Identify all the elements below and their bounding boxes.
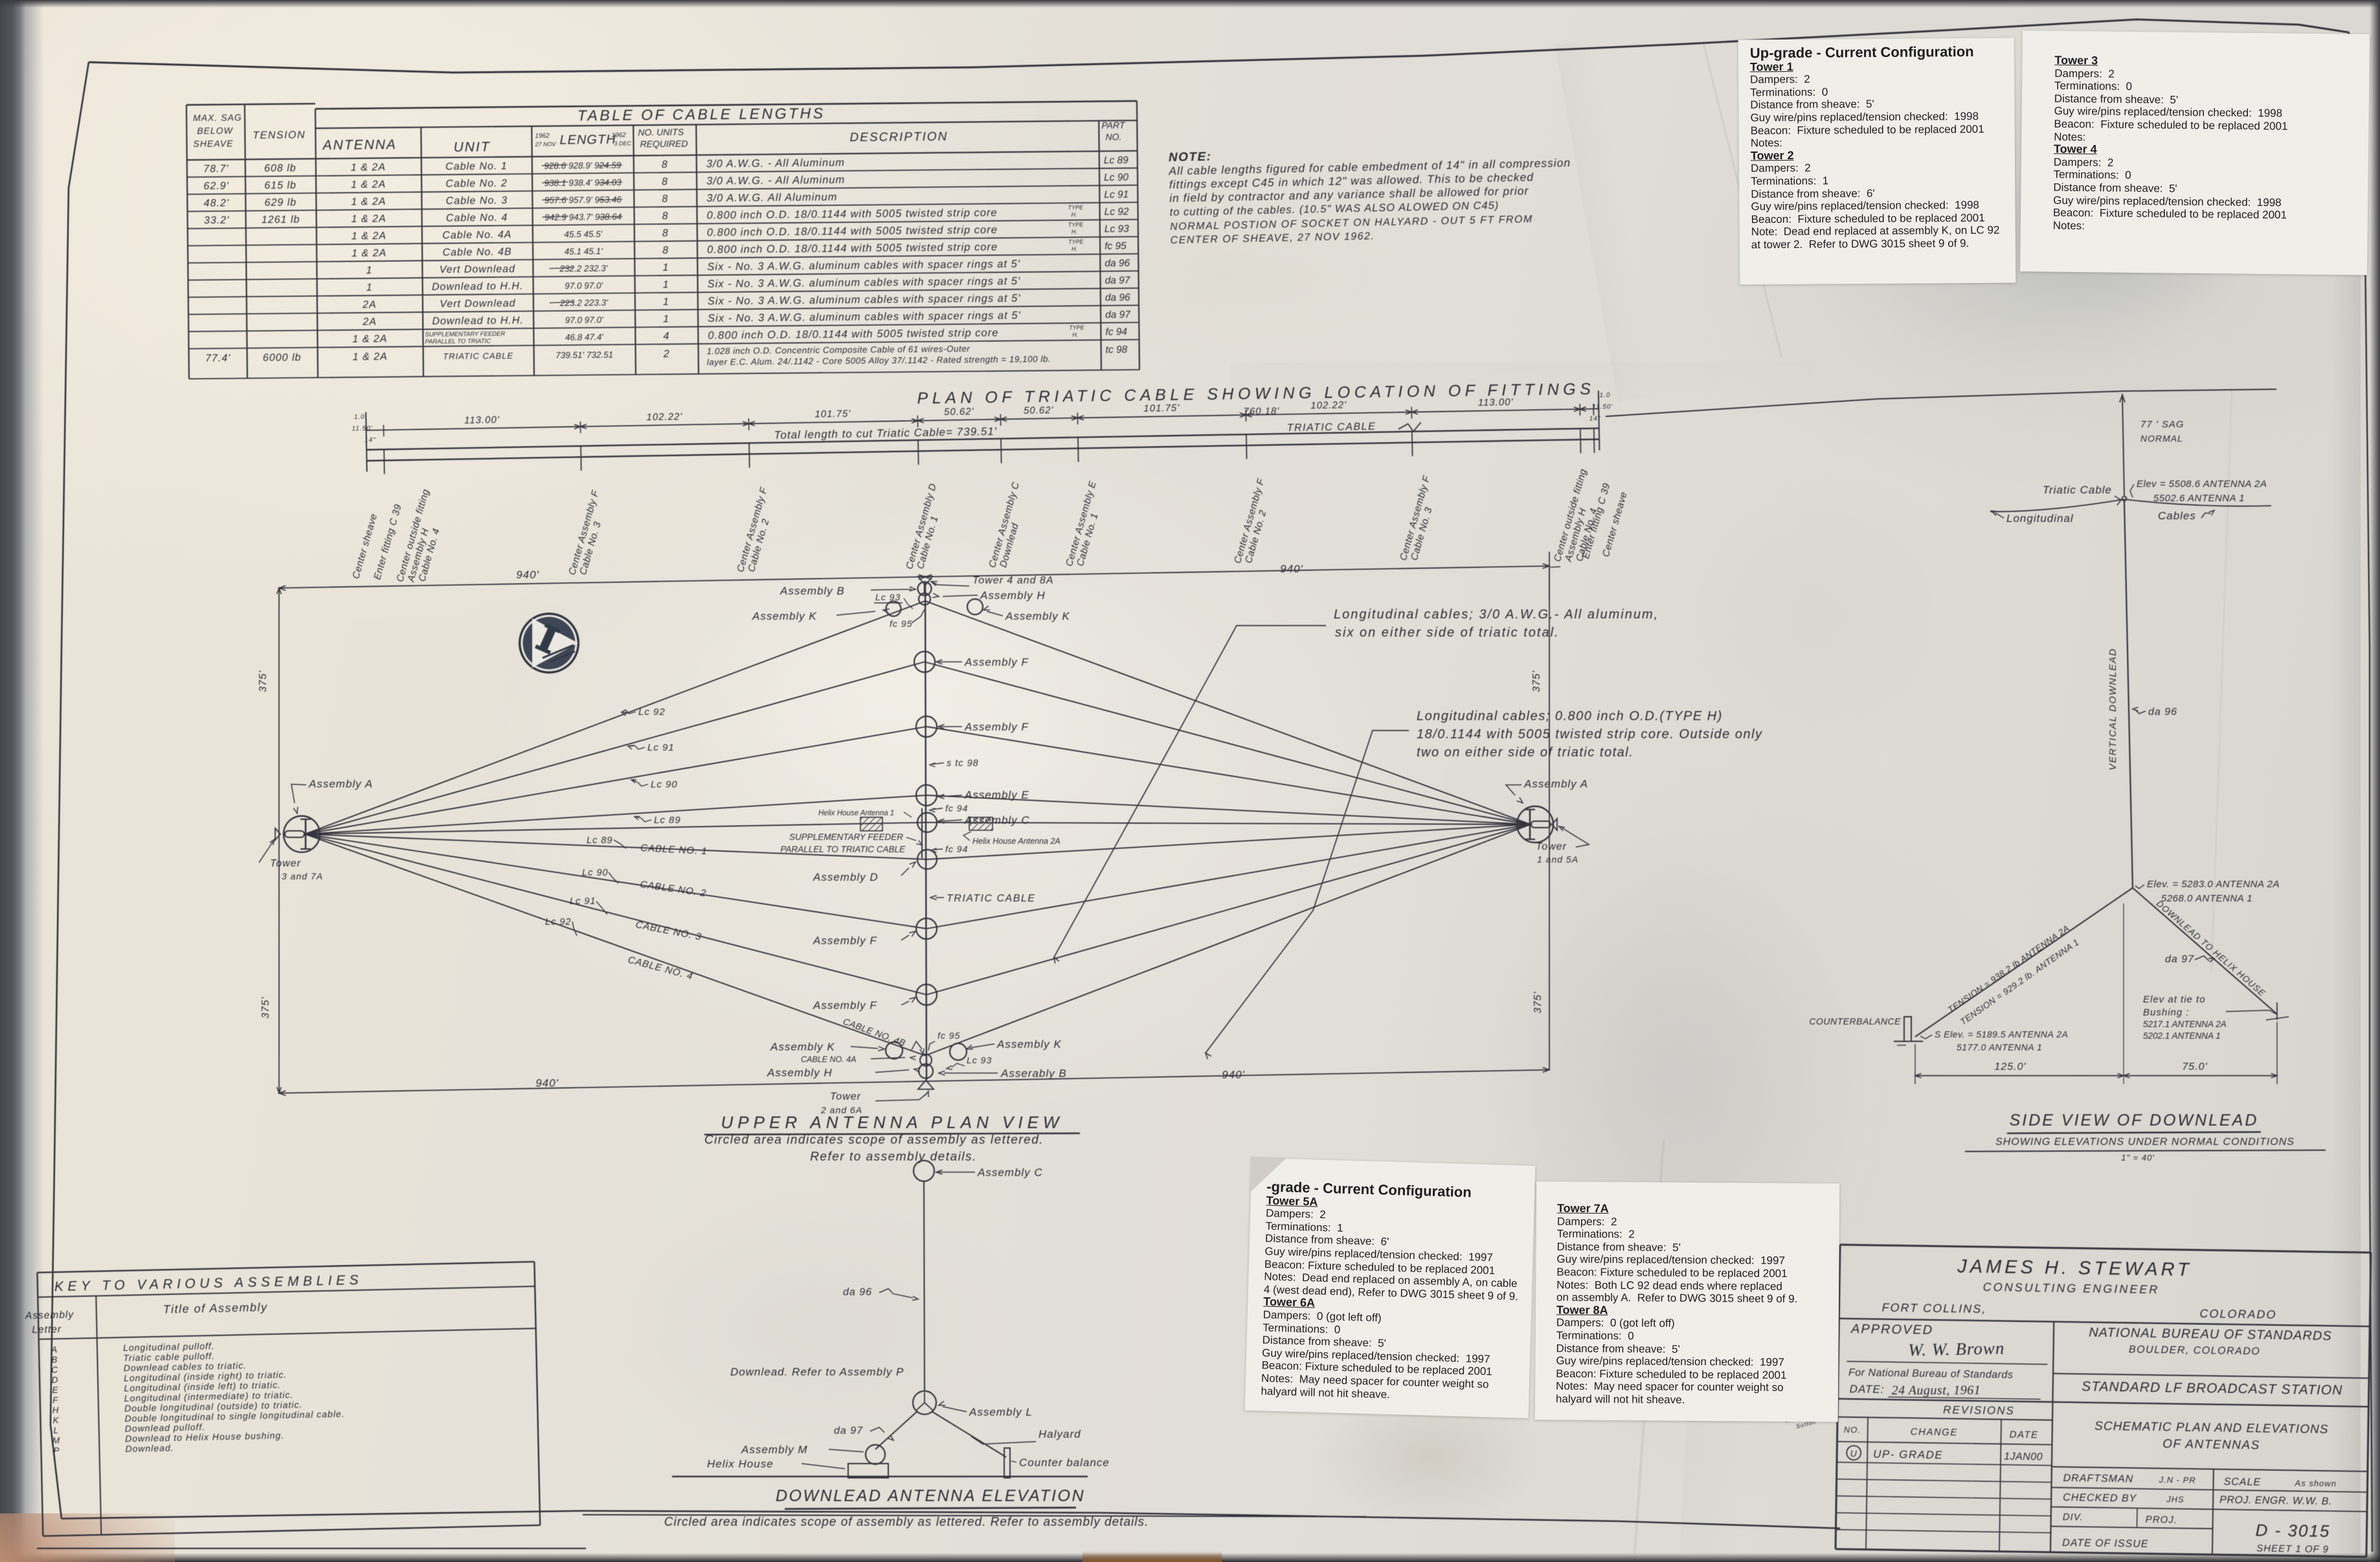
svg-text:NO.: NO. bbox=[1105, 131, 1121, 142]
svg-text:6000 lb: 6000 lb bbox=[263, 352, 302, 364]
svg-text:Elev at tie to: Elev at tie to bbox=[2143, 994, 2206, 1005]
svg-text:3/0 A.W.G. All Aluminum: 3/0 A.W.G. All Aluminum bbox=[706, 191, 837, 204]
svg-text:1962: 1962 bbox=[611, 131, 626, 139]
svg-text:Tower: Tower bbox=[270, 858, 301, 869]
svg-text:113.00': 113.00' bbox=[1478, 397, 1514, 409]
svg-text:ANTENNA: ANTENNA bbox=[321, 137, 397, 153]
svg-text:fc 95: fc 95 bbox=[1105, 241, 1127, 252]
svg-text:DRAFTSMAN: DRAFTSMAN bbox=[2063, 1473, 2134, 1485]
svg-text:da 96: da 96 bbox=[1105, 292, 1130, 303]
svg-text:Six - No. 3 A.W.G. aluminum: Six - No. 3 A.W.G. aluminum cables with … bbox=[708, 310, 1021, 324]
svg-text:940': 940' bbox=[535, 1077, 559, 1089]
svg-text:TENSION = 929.2 lb. ANTENNA: TENSION = 929.2 lb. ANTENNA 1 bbox=[1959, 937, 2081, 1027]
svg-text:DATE: DATE bbox=[2010, 1429, 2039, 1441]
svg-text:Letter: Letter bbox=[32, 1324, 62, 1335]
svg-text:TYPE: TYPE bbox=[1068, 238, 1084, 245]
svg-text:Assembly K: Assembly K bbox=[1005, 610, 1070, 622]
svg-text:TYPE: TYPE bbox=[1069, 324, 1085, 331]
svg-text:Vert Downlead: Vert Downlead bbox=[440, 298, 516, 310]
svg-text:4: 4 bbox=[663, 331, 669, 342]
svg-text:U: U bbox=[1850, 1448, 1858, 1458]
svg-text:3/0 A.W.G. - All Aluminu: 3/0 A.W.G. - All Aluminum bbox=[706, 174, 845, 187]
svg-text:Lc 91: Lc 91 bbox=[1104, 189, 1128, 200]
svg-text:CABLE NO. 1: CABLE NO. 1 bbox=[640, 843, 708, 857]
svg-text:Bushing :: Bushing : bbox=[2143, 1007, 2190, 1018]
svg-text:TYPE: TYPE bbox=[1068, 221, 1084, 228]
svg-text:5202.1 ANTENNA 1: 5202.1 ANTENNA 1 bbox=[2143, 1031, 2221, 1041]
svg-text:SCHEMATIC PLAN AND ELEVATIO: SCHEMATIC PLAN AND ELEVATIONS bbox=[2094, 1420, 2329, 1436]
svg-text:1 & 2A: 1 & 2A bbox=[352, 334, 387, 345]
svg-text:H.: H. bbox=[1072, 229, 1077, 235]
svg-text:8: 8 bbox=[662, 228, 669, 239]
svg-text:CONSULTING ENGINEER: CONSULTING ENGINEER bbox=[1983, 1280, 2160, 1296]
svg-text:UNIT: UNIT bbox=[453, 140, 490, 155]
svg-text:E: E bbox=[52, 1385, 58, 1395]
svg-text:102.22': 102.22' bbox=[1310, 400, 1347, 411]
svg-text:K: K bbox=[52, 1416, 59, 1425]
svg-text:D: D bbox=[52, 1375, 59, 1385]
svg-text:77.4': 77.4' bbox=[205, 353, 230, 364]
svg-text:78.7': 78.7' bbox=[203, 163, 229, 174]
svg-text:46.8 47.4': 46.8 47.4' bbox=[565, 332, 603, 343]
svg-text:Cable No. 4B: Cable No. 4B bbox=[442, 247, 511, 258]
svg-text:Lc 90: Lc 90 bbox=[1104, 172, 1128, 183]
svg-text:48.2': 48.2' bbox=[204, 198, 229, 209]
svg-text:5217.1 ANTENNA 2A: 5217.1 ANTENNA 2A bbox=[2143, 1019, 2227, 1029]
svg-text:DESCRIPTION: DESCRIPTION bbox=[849, 130, 948, 144]
svg-text:NO. UNITS: NO. UNITS bbox=[638, 127, 684, 138]
svg-text:COLORADO: COLORADO bbox=[2199, 1307, 2276, 1321]
svg-text:SHEET 1 OF 9: SHEET 1 OF 9 bbox=[2256, 1543, 2329, 1556]
svg-text:Tower 4 and 8A: Tower 4 and 8A bbox=[972, 575, 1053, 586]
svg-text:da 97: da 97 bbox=[2165, 954, 2194, 965]
svg-text:45.5 45.5': 45.5 45.5' bbox=[564, 229, 602, 240]
svg-text:VERTICAL DOWNLEAD: VERTICAL DOWNLEAD bbox=[2107, 648, 2118, 770]
svg-text:1: 1 bbox=[366, 265, 372, 276]
svg-text:Assembly C: Assembly C bbox=[977, 1166, 1043, 1179]
svg-text:DOWNLEAD TO HELIX HOUSE: DOWNLEAD TO HELIX HOUSE bbox=[2155, 898, 2267, 998]
svg-text:H.: H. bbox=[1072, 211, 1077, 218]
svg-text:TABLE OF CABLE LENGTHS: TABLE OF CABLE LENGTHS bbox=[578, 105, 825, 124]
svg-text:Cables: Cables bbox=[2158, 510, 2196, 522]
svg-text:113.00': 113.00' bbox=[464, 414, 500, 426]
svg-text:APPROVED: APPROVED bbox=[1850, 1322, 1933, 1337]
svg-text:33.2': 33.2' bbox=[204, 215, 229, 226]
svg-text:Assembly: Assembly bbox=[25, 1309, 74, 1322]
svg-text:Elev. = 5283.0 ANTENNA 2A: Elev. = 5283.0 ANTENNA 2A bbox=[2147, 879, 2280, 890]
svg-text:TYPE: TYPE bbox=[1068, 204, 1084, 210]
svg-text:NO.: NO. bbox=[1844, 1425, 1861, 1434]
svg-text:da 97: da 97 bbox=[834, 1425, 863, 1436]
svg-text:Circled area indicates sco: Circled area indicates scope of assembly… bbox=[704, 1133, 1044, 1147]
svg-text:375': 375' bbox=[258, 670, 269, 692]
svg-text:Lc 93: Lc 93 bbox=[967, 1055, 992, 1065]
svg-text:Elev = 5508.6 ANTENNA 2A: Elev = 5508.6 ANTENNA 2A bbox=[2137, 479, 2267, 490]
svg-text:fc 95: fc 95 bbox=[937, 1030, 960, 1041]
svg-text:1: 1 bbox=[663, 279, 669, 290]
svg-text:CENTER OF SHEAVE, 27 NOV 1962.: CENTER OF SHEAVE, 27 NOV 1962. bbox=[1170, 231, 1375, 246]
svg-text:s tc 98: s tc 98 bbox=[947, 758, 979, 769]
svg-text:da 96: da 96 bbox=[2148, 707, 2177, 718]
svg-text:629 lb: 629 lb bbox=[264, 197, 297, 208]
svg-text:101.75': 101.75' bbox=[1143, 403, 1180, 414]
svg-text:L: L bbox=[53, 1425, 59, 1435]
svg-text:1 & 2A: 1 & 2A bbox=[352, 231, 387, 242]
svg-text:62.9': 62.9' bbox=[203, 181, 229, 192]
svg-text:Downlead.: Downlead. bbox=[125, 1443, 174, 1454]
svg-text:125.0': 125.0' bbox=[1994, 1061, 2026, 1072]
svg-text:8: 8 bbox=[662, 194, 668, 205]
svg-text:Six - No. 3 A.W.G. aluminum: Six - No. 3 A.W.G. aluminum cables with … bbox=[708, 275, 1021, 290]
svg-text:F: F bbox=[52, 1395, 59, 1405]
svg-text:As shown: As shown bbox=[2295, 1478, 2337, 1488]
svg-text:fc 94: fc 94 bbox=[1105, 326, 1127, 337]
svg-text:1: 1 bbox=[366, 282, 373, 293]
svg-text:UP- GRADE: UP- GRADE bbox=[1873, 1448, 1943, 1462]
svg-text:FORT COLLINS,: FORT COLLINS, bbox=[1881, 1301, 1986, 1315]
svg-text:8: 8 bbox=[662, 159, 668, 170]
svg-text:fc 94: fc 94 bbox=[945, 844, 968, 854]
svg-text:PROJ. ENGR. W.W. B.: PROJ. ENGR. W.W. B. bbox=[2219, 1495, 2332, 1508]
svg-text:Assembly H: Assembly H bbox=[767, 1067, 833, 1079]
svg-text:Triatic Cable: Triatic Cable bbox=[2043, 484, 2112, 496]
svg-text:1 & 2A: 1 & 2A bbox=[351, 196, 386, 208]
svg-text:DATE:: DATE: bbox=[1850, 1383, 1885, 1396]
svg-text:Downlead to H.H.: Downlead to H.H. bbox=[432, 281, 524, 293]
svg-text:0.800 inch O.D. 18/0.1144: 0.800 inch O.D. 18/0.1144 with 5005 twis… bbox=[707, 224, 998, 238]
svg-text:1: 1 bbox=[663, 313, 669, 324]
svg-text:CABLE NO. 4A: CABLE NO. 4A bbox=[801, 1055, 856, 1064]
svg-text:CHECKED BY: CHECKED BY bbox=[2063, 1492, 2137, 1504]
svg-text:0.800 inch O.D. 18/0.1144: 0.800 inch O.D. 18/0.1144 with 5005 twis… bbox=[706, 207, 997, 221]
svg-text:0.800 inch O.D. 18/0.1144: 0.800 inch O.D. 18/0.1144 with 5005 twis… bbox=[708, 327, 998, 341]
svg-text:1: 1 bbox=[663, 297, 669, 308]
svg-text:18/0.1144 with 5005 twisted: 18/0.1144 with 5005 twisted strip core. … bbox=[1417, 727, 1763, 741]
svg-text:S Elev. = 5189.5 ANTENNA 2A: S Elev. = 5189.5 ANTENNA 2A bbox=[1935, 1029, 2068, 1039]
svg-text:940': 940' bbox=[1280, 563, 1303, 575]
svg-text:97.0 97.0': 97.0 97.0' bbox=[565, 280, 603, 291]
svg-text:D - 3015: D - 3015 bbox=[2255, 1521, 2330, 1541]
svg-text:CABLE NO. 4: CABLE NO. 4 bbox=[627, 954, 694, 982]
svg-text:739.51' 732.51: 739.51' 732.51 bbox=[556, 350, 613, 360]
svg-text:375': 375' bbox=[260, 997, 271, 1019]
svg-text:Assembly K: Assembly K bbox=[752, 610, 817, 622]
svg-text:232.2 232.3': 232.2 232.3' bbox=[559, 264, 607, 274]
svg-text:layer E.C. Alum. 24/.1142 - Co: layer E.C. Alum. 24/.1142 - Core 5005 Al… bbox=[707, 354, 1051, 367]
svg-text:A: A bbox=[51, 1344, 58, 1354]
svg-text:Lc 93: Lc 93 bbox=[1105, 223, 1129, 234]
svg-text:UPPER ANTENNA PLAN VIEW: UPPER ANTENNA PLAN VIEW bbox=[721, 1113, 1064, 1132]
svg-text:JHS: JHS bbox=[2166, 1495, 2184, 1504]
svg-text:SUPPLEMENTARY FEEDER: SUPPLEMENTARY FEEDER bbox=[425, 330, 505, 338]
svg-text:Assembly F: Assembly F bbox=[964, 721, 1029, 733]
svg-text:For National Bureau of Stan: For National Bureau of Standards bbox=[1848, 1367, 2014, 1381]
svg-text:TENSION: TENSION bbox=[253, 130, 306, 141]
svg-text:11.50': 11.50' bbox=[1592, 403, 1613, 411]
svg-text:STANDARD LF BROADCAST STAT: STANDARD LF BROADCAST STATION bbox=[2082, 1379, 2342, 1398]
svg-text:Assembly A: Assembly A bbox=[308, 778, 373, 790]
svg-text:1.028 inch O.D. Concentric: 1.028 inch O.D. Concentric Composite Cab… bbox=[707, 344, 971, 356]
svg-text:Six - No. 3 A.W.G. aluminum: Six - No. 3 A.W.G. aluminum cables with … bbox=[708, 293, 1021, 308]
svg-text:PROJ.: PROJ. bbox=[2146, 1514, 2177, 1526]
svg-text:Lc 89: Lc 89 bbox=[587, 835, 612, 846]
svg-text:3 DEC: 3 DEC bbox=[614, 140, 631, 146]
svg-text:1 & 2A: 1 & 2A bbox=[352, 248, 387, 260]
svg-text:Helix House Antenna 2A: Helix House Antenna 2A bbox=[972, 837, 1061, 846]
svg-text:SUPPLEMENTARY FEEDER: SUPPLEMENTARY FEEDER bbox=[789, 832, 903, 842]
svg-text:da 97: da 97 bbox=[1105, 310, 1131, 321]
svg-text:50.62': 50.62' bbox=[1024, 405, 1054, 416]
svg-text:Downlead. Refer to Assembly: Downlead. Refer to Assembly P bbox=[730, 1366, 904, 1378]
svg-text:Vert Downlead: Vert Downlead bbox=[440, 264, 516, 275]
svg-text:Tower: Tower bbox=[830, 1091, 861, 1102]
svg-text:J.N - PR: J.N - PR bbox=[2159, 1475, 2196, 1485]
svg-text:Assembly E: Assembly E bbox=[964, 789, 1029, 801]
svg-text:fc 95: fc 95 bbox=[890, 618, 912, 629]
svg-text:Title of Assembly: Title of Assembly bbox=[163, 1300, 268, 1316]
svg-text:Assembly M: Assembly M bbox=[741, 1443, 808, 1456]
svg-text:H.: H. bbox=[1072, 332, 1078, 338]
svg-text:375': 375' bbox=[1532, 991, 1544, 1013]
svg-text:Helix House: Helix House bbox=[707, 1458, 774, 1470]
svg-text:5177.0 ANTENNA 1: 5177.0 ANTENNA 1 bbox=[1957, 1042, 2042, 1052]
svg-text:101.75': 101.75' bbox=[814, 408, 851, 420]
svg-text:DOWNLEAD ANTENNA ELEVATION: DOWNLEAD ANTENNA ELEVATION bbox=[776, 1487, 1085, 1505]
svg-text:Counter balance: Counter balance bbox=[1019, 1456, 1110, 1469]
svg-text:six on either side of triati: six on either side of triatic total. bbox=[1335, 626, 1560, 640]
svg-text:SHEAVE: SHEAVE bbox=[193, 138, 233, 149]
svg-text:Assembly K: Assembly K bbox=[996, 1038, 1062, 1050]
svg-text:LENGTH: LENGTH bbox=[559, 133, 616, 148]
svg-text:8: 8 bbox=[662, 210, 669, 221]
svg-text:da 96: da 96 bbox=[843, 1287, 872, 1298]
svg-text:JAMES H. STEWART: JAMES H. STEWART bbox=[1957, 1256, 2192, 1280]
svg-text:Assembly F: Assembly F bbox=[813, 934, 877, 947]
svg-text:P: P bbox=[53, 1445, 60, 1455]
svg-text:Cable No. 1: Cable No. 1 bbox=[445, 161, 508, 172]
svg-text:102.22': 102.22' bbox=[646, 411, 682, 423]
svg-text:1.0: 1.0 bbox=[354, 414, 365, 421]
svg-text:Downlead to H.H.: Downlead to H.H. bbox=[432, 315, 524, 327]
svg-text:Tower: Tower bbox=[1536, 841, 1567, 852]
svg-text:75.0': 75.0' bbox=[2182, 1061, 2207, 1072]
svg-text:H.: H. bbox=[1072, 245, 1077, 252]
svg-text:fc 94: fc 94 bbox=[945, 803, 968, 813]
svg-text:2: 2 bbox=[663, 348, 670, 359]
svg-text:Cable No. 4A: Cable No. 4A bbox=[442, 229, 511, 241]
svg-text:Assembly F: Assembly F bbox=[964, 656, 1029, 668]
svg-text:Helix House Antenna 1: Helix House Antenna 1 bbox=[818, 809, 894, 817]
svg-text:77 ' SAG: 77 ' SAG bbox=[2140, 419, 2184, 430]
svg-text:1JAN00: 1JAN00 bbox=[2004, 1451, 2043, 1463]
svg-text:OF ANTENNAS: OF ANTENNAS bbox=[2162, 1437, 2260, 1452]
svg-text:W. W. Brown: W. W. Brown bbox=[1908, 1339, 2005, 1360]
svg-text:Assembly A: Assembly A bbox=[1523, 778, 1588, 790]
svg-text:1 & 2A: 1 & 2A bbox=[351, 162, 386, 174]
svg-text:Lc 90: Lc 90 bbox=[582, 868, 608, 878]
svg-text:TRIATIC CABLE: TRIATIC CABLE bbox=[1287, 421, 1376, 433]
svg-text:3/0 A.W.G. - All Aluminu: 3/0 A.W.G. - All Aluminum bbox=[706, 157, 845, 170]
svg-text:1: 1 bbox=[662, 262, 669, 273]
svg-text:CHANGE: CHANGE bbox=[1911, 1427, 1958, 1438]
svg-text:Assembly H: Assembly H bbox=[980, 589, 1046, 602]
svg-text:TENSION = 938.2 lb ANTENNA: TENSION = 938.2 lb ANTENNA 2A bbox=[1946, 923, 2071, 1015]
svg-text:Circled area indicates scop: Circled area indicates scope of assembly… bbox=[664, 1515, 1149, 1529]
svg-text:Halyard: Halyard bbox=[1038, 1428, 1081, 1440]
svg-text:CABLE NO. 3: CABLE NO. 3 bbox=[634, 919, 702, 942]
svg-text:SCALE: SCALE bbox=[2224, 1477, 2262, 1488]
svg-text:Lc 89: Lc 89 bbox=[654, 815, 681, 826]
svg-text:940': 940' bbox=[1222, 1069, 1245, 1081]
svg-text:Lc 91: Lc 91 bbox=[647, 742, 675, 753]
svg-text:NOTE:: NOTE: bbox=[1169, 150, 1212, 164]
svg-text:1.0: 1.0 bbox=[1599, 392, 1610, 399]
svg-text:Six - No. 3 A.W.G. aluminum: Six - No. 3 A.W.G. aluminum cables with … bbox=[707, 258, 1020, 273]
svg-text:B: B bbox=[51, 1355, 58, 1364]
svg-text:97.0 97.0': 97.0 97.0' bbox=[565, 315, 603, 325]
svg-text:da 97: da 97 bbox=[1105, 275, 1130, 286]
svg-text:tc 98: tc 98 bbox=[1106, 345, 1128, 356]
svg-text:Lc 90: Lc 90 bbox=[651, 779, 678, 790]
svg-text:608 lb: 608 lb bbox=[264, 163, 297, 174]
svg-text:DIV.: DIV. bbox=[2063, 1511, 2083, 1522]
svg-text:REVISIONS: REVISIONS bbox=[1943, 1403, 2015, 1417]
svg-text:da 96: da 96 bbox=[1105, 258, 1130, 269]
svg-text:CABLE NO. 2: CABLE NO. 2 bbox=[639, 879, 707, 899]
svg-text:Assembly D: Assembly D bbox=[813, 871, 879, 883]
svg-text:TRIATIC CABLE: TRIATIC CABLE bbox=[947, 893, 1035, 904]
svg-text:1 & 2A: 1 & 2A bbox=[352, 214, 387, 225]
svg-text:M: M bbox=[52, 1436, 61, 1445]
svg-text:Cable No. 4: Cable No. 4 bbox=[446, 212, 508, 224]
svg-text:PARALLEL TO TRIATIC: PARALLEL TO TRIATIC bbox=[425, 338, 491, 346]
svg-text:Refer to assembly details.: Refer to assembly details. bbox=[810, 1150, 977, 1164]
svg-text:1 & 2A: 1 & 2A bbox=[353, 352, 388, 363]
svg-text:Lc 91: Lc 91 bbox=[570, 896, 596, 907]
svg-text:5502.6 ANTENNA 1: 5502.6 ANTENNA 1 bbox=[2153, 493, 2245, 504]
svg-text:REQUIRED: REQUIRED bbox=[640, 139, 688, 150]
svg-text:615 lb: 615 lb bbox=[264, 180, 297, 191]
svg-text:0.800 inch O.D. 18/0.1144: 0.800 inch O.D. 18/0.1144 with 5005 twis… bbox=[707, 241, 998, 255]
svg-text:Lc 93: Lc 93 bbox=[875, 592, 901, 602]
svg-text:223.2 223.3': 223.2 223.3' bbox=[559, 298, 608, 308]
svg-text:Lc 92: Lc 92 bbox=[638, 707, 666, 718]
svg-text:Assembly L: Assembly L bbox=[969, 1406, 1033, 1418]
svg-text:1" = 40': 1" = 40' bbox=[2121, 1153, 2155, 1162]
svg-text:TRIATIC CABLE: TRIATIC CABLE bbox=[443, 351, 513, 361]
svg-text:Cable No. 3: Cable No. 3 bbox=[446, 195, 508, 207]
svg-text:COUNTERBALANCE: COUNTERBALANCE bbox=[1809, 1016, 1901, 1026]
svg-text:Asserably B: Asserably B bbox=[1000, 1067, 1067, 1080]
svg-text:Lc 92: Lc 92 bbox=[1104, 207, 1128, 218]
svg-text:Longitudinal cables; 0.800 i: Longitudinal cables; 0.800 inch O.D.(TYP… bbox=[1417, 709, 1723, 723]
svg-text:Longitudinal cables; 3/0: Longitudinal cables; 3/0 A.W.G.- All alu… bbox=[1334, 607, 1659, 622]
svg-text:2A: 2A bbox=[362, 299, 377, 310]
svg-text:Cable No. 2: Cable No. 2 bbox=[445, 178, 508, 190]
svg-text:Longitudinal: Longitudinal bbox=[2006, 512, 2074, 525]
svg-text:2A: 2A bbox=[362, 317, 377, 328]
svg-text:Assembly K: Assembly K bbox=[770, 1041, 835, 1053]
svg-text:H: H bbox=[52, 1405, 60, 1415]
svg-text:NORMAL: NORMAL bbox=[2140, 433, 2183, 444]
svg-text:C: C bbox=[51, 1365, 58, 1375]
svg-text:1962: 1962 bbox=[535, 133, 550, 140]
svg-text:1 and 5A: 1 and 5A bbox=[1537, 854, 1578, 865]
svg-text:Lc 92: Lc 92 bbox=[545, 917, 571, 927]
svg-text:MAX. SAG: MAX. SAG bbox=[193, 112, 242, 123]
svg-text:Lc 89: Lc 89 bbox=[1104, 155, 1128, 166]
svg-text:two on either side of tri: two on either side of triatic total. bbox=[1417, 745, 1633, 760]
svg-text:11.50': 11.50' bbox=[352, 425, 372, 433]
svg-text:5268.0 ANTENNA 1: 5268.0 ANTENNA 1 bbox=[2161, 893, 2252, 904]
svg-text:Assembly F: Assembly F bbox=[813, 999, 877, 1012]
svg-text:DATE OF ISSUE: DATE OF ISSUE bbox=[2062, 1537, 2149, 1550]
svg-text:8: 8 bbox=[662, 245, 669, 256]
svg-text:SIDE VIEW OF DOWNLEAD: SIDE VIEW OF DOWNLEAD bbox=[2010, 1111, 2259, 1129]
svg-text:375': 375' bbox=[1531, 670, 1542, 692]
svg-text:27 NOV: 27 NOV bbox=[534, 141, 556, 148]
svg-text:8: 8 bbox=[662, 176, 668, 187]
svg-text:NATIONAL BUREAU OF STANDARDS: NATIONAL BUREAU OF STANDARDS bbox=[2089, 1326, 2332, 1344]
svg-text:3 and 7A: 3 and 7A bbox=[282, 871, 323, 881]
svg-text:SHOWING ELEVATIONS UNDER NORMA: SHOWING ELEVATIONS UNDER NORMAL CONDITIO… bbox=[1995, 1137, 2295, 1148]
svg-text:45.1 45.1': 45.1 45.1' bbox=[565, 246, 603, 256]
svg-text:PART: PART bbox=[1101, 120, 1126, 130]
svg-text:Assembly B: Assembly B bbox=[780, 585, 845, 597]
svg-text:BELOW: BELOW bbox=[197, 125, 234, 136]
svg-text:1 & 2A: 1 & 2A bbox=[351, 179, 386, 191]
svg-text:PARALLEL TO TRIATIC CABLE: PARALLEL TO TRIATIC CABLE bbox=[780, 844, 906, 854]
svg-text:50.62': 50.62' bbox=[944, 406, 974, 418]
svg-text:940': 940' bbox=[516, 569, 539, 581]
svg-text:1261 lb: 1261 lb bbox=[262, 214, 300, 226]
svg-text:24 August, 1961: 24 August, 1961 bbox=[1892, 1383, 1981, 1398]
svg-text:BOULDER, COLORADO: BOULDER, COLORADO bbox=[2129, 1344, 2261, 1357]
